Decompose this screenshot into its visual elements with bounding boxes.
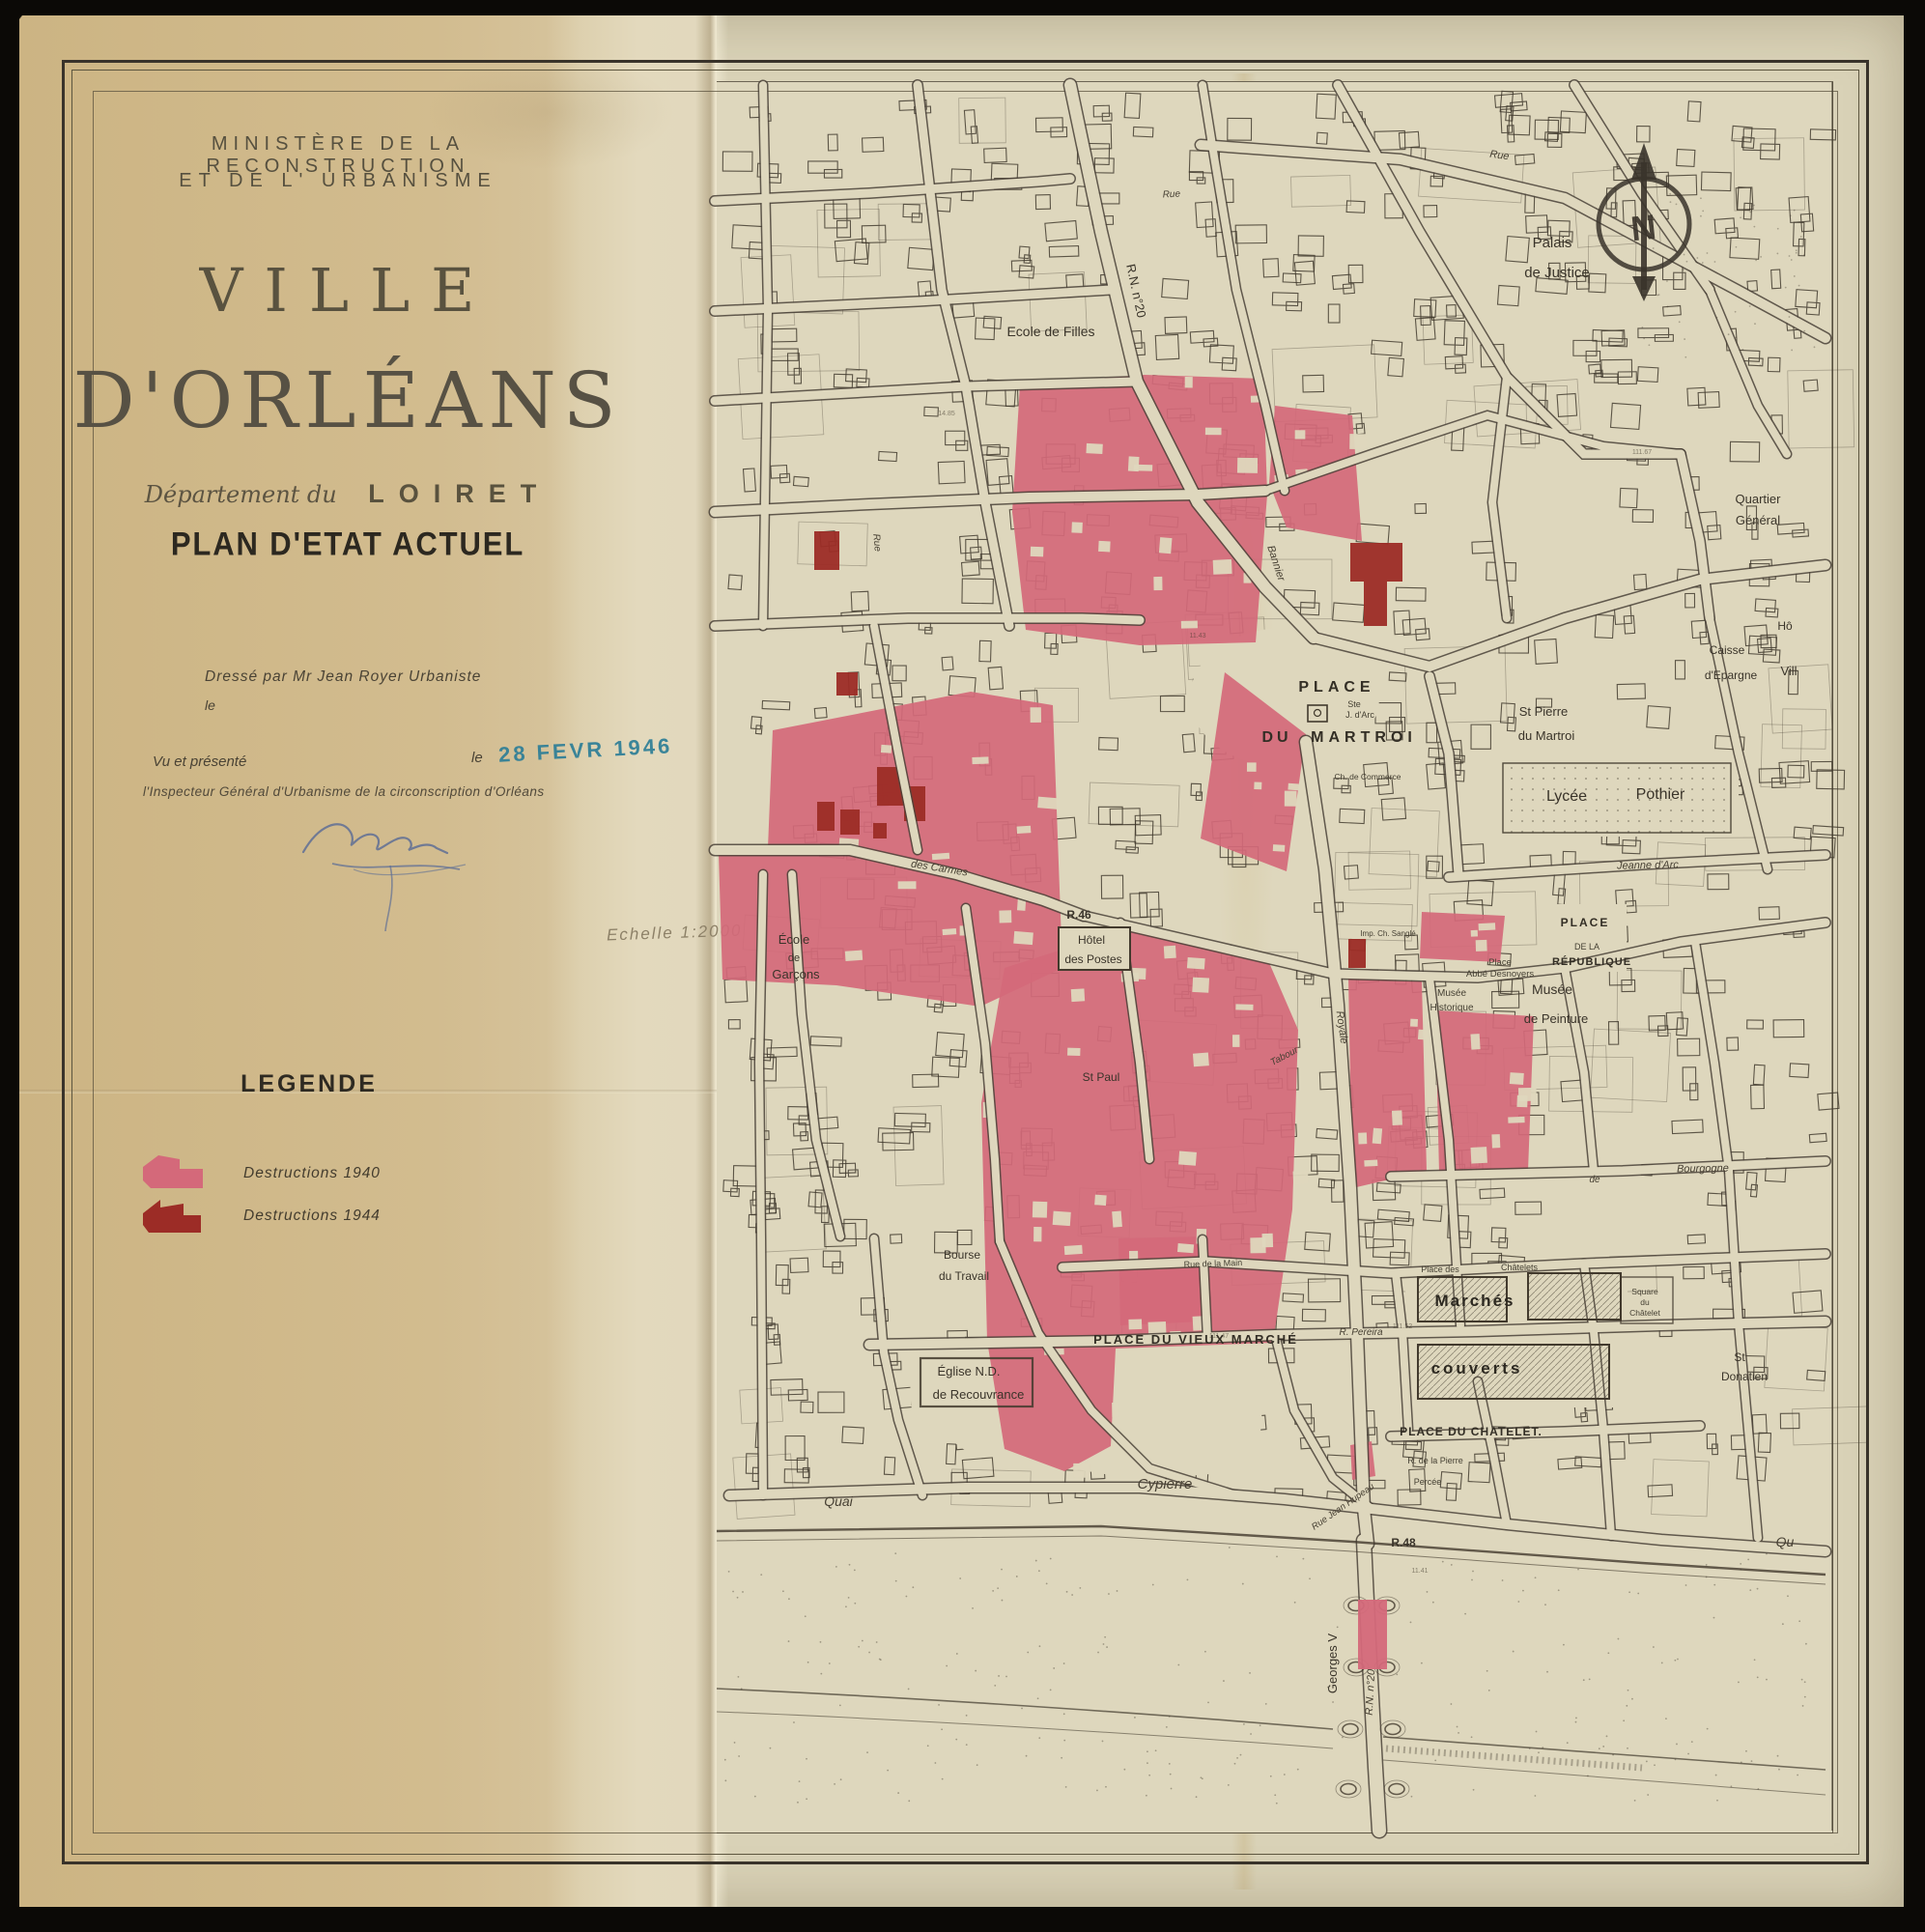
ministry-line2: ET DE L' URBANISME: [87, 170, 589, 192]
department-prefix: Département du: [145, 481, 337, 508]
inspector-line: l'Inspecteur Général d'Urbanisme de la c…: [143, 784, 545, 799]
legend-item-1940: Destructions 1940: [143, 1153, 232, 1196]
reviewed-line: Vu et présenté: [153, 753, 246, 770]
department-line: Département du LOIRET: [87, 479, 609, 509]
map-sheet-paper: [717, 81, 1833, 1833]
drafted-by-line: Dressé par Mr Jean Royer Urbaniste: [205, 668, 481, 686]
legend-label-1944: Destructions 1944: [243, 1207, 381, 1225]
legend-swatch-1944-icon: [143, 1196, 232, 1238]
department-name: LOIRET: [368, 479, 551, 508]
drafted-le: le: [205, 697, 215, 713]
scanned-map-sheet: MINISTÈRE DE LA RECONSTRUCTION ET DE L' …: [0, 0, 1925, 1932]
map-title-orleans: D'ORLÉANS: [68, 355, 628, 445]
signature: [290, 810, 502, 935]
legend-label-1940: Destructions 1940: [243, 1165, 381, 1182]
legend-heading: LEGENDE: [222, 1070, 396, 1098]
torn-corner: [0, 0, 73, 60]
map-title-ville: VILLE: [87, 255, 609, 326]
plan-subtitle: PLAN D'ETAT ACTUEL: [102, 525, 593, 563]
stamp-le: le: [471, 750, 483, 766]
paper-sheet: MINISTÈRE DE LA RECONSTRUCTION ET DE L' …: [19, 15, 1904, 1907]
legend-item-1944: Destructions 1944: [143, 1196, 232, 1238]
legend-swatch-1940-icon: [143, 1153, 232, 1196]
